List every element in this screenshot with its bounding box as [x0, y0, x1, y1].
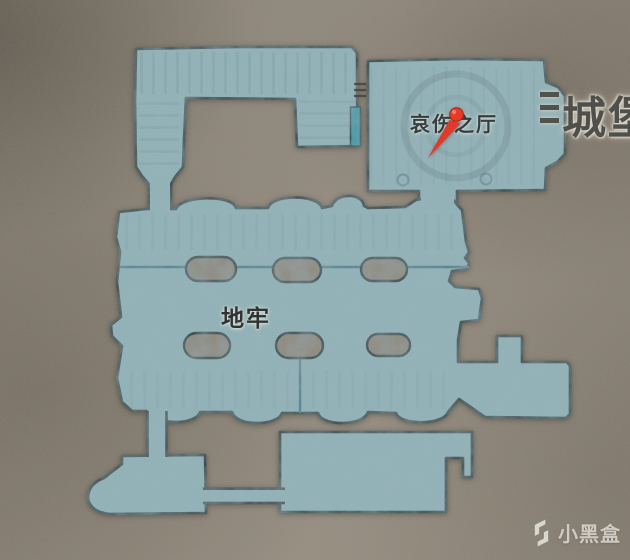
map-region-foot: [88, 455, 206, 514]
map-hole: [184, 333, 230, 358]
heybox-logo-icon: [531, 519, 552, 547]
map-hole: [361, 258, 407, 281]
watermark-brand-text: 小黑盒: [558, 518, 621, 547]
map-region-bottom-annex: [280, 432, 472, 512]
annex-corridor: [201, 489, 285, 503]
watermark: 小黑盒: [531, 518, 621, 547]
castle-label: 城堡: [562, 82, 630, 146]
castle-label-partial-char: [540, 92, 559, 127]
map-hole: [276, 333, 323, 358]
neck-connector: [150, 173, 170, 211]
dungeon-map-screenshot: 哀伤之厅 地牢 城堡 小黑盒: [0, 0, 630, 560]
map-hole: [367, 334, 410, 356]
map-hole: [186, 257, 236, 281]
dungeon-label: 地牢: [221, 299, 271, 333]
hall-of-sorrow-label: 哀伤之厅: [410, 108, 498, 137]
foot-connector: [148, 408, 167, 460]
map-hole: [273, 258, 321, 282]
teal-door-bar: [351, 107, 361, 146]
room-connector: [421, 189, 454, 208]
map-canvas: [0, 0, 630, 560]
